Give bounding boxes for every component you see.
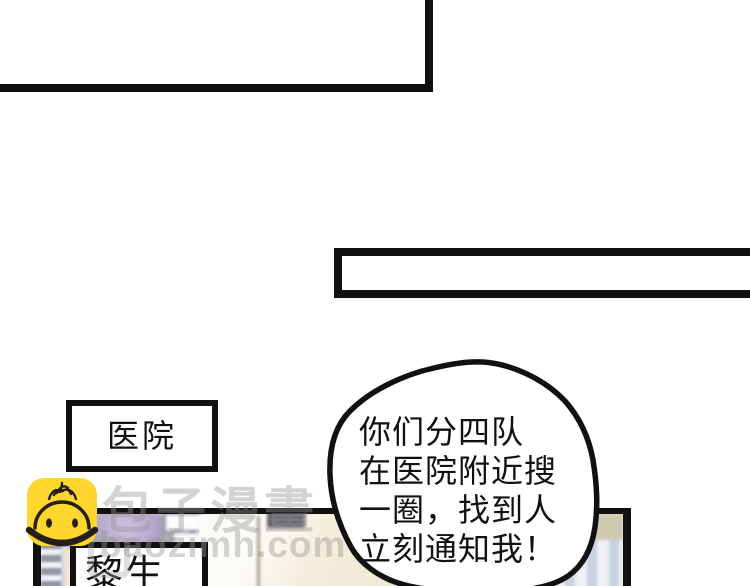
hospital-sign-label: 医院 — [107, 420, 177, 452]
comic-page: 医院 黎生 你们分四队 在医院附近搜 一圈，找到人 立刻通知我！ 包子漫畫 ba… — [0, 0, 750, 586]
speech-line: 立刻通知我！ — [359, 530, 557, 569]
empty-caption-box-top — [0, 0, 433, 92]
watermark-domain-text: baozimh.com — [99, 524, 346, 566]
empty-caption-box-right — [334, 248, 750, 298]
speech-line: 一圈，找到人 — [359, 491, 557, 530]
speech-line: 你们分四队 — [359, 413, 557, 452]
speech-bubble-text: 你们分四队 在医院附近搜 一圈，找到人 立刻通知我！ — [359, 413, 557, 569]
hospital-sign-box: 医院 — [66, 400, 218, 472]
baozi-mascot-icon — [24, 476, 100, 554]
speech-line: 在医院附近搜 — [359, 452, 557, 491]
